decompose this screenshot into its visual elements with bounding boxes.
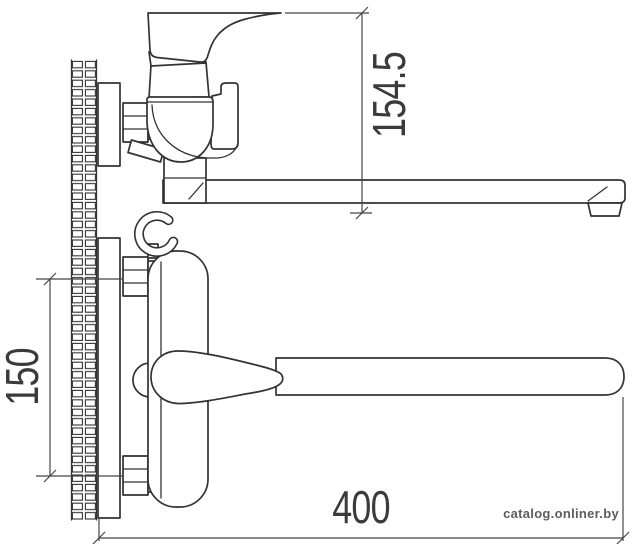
lower-connector-nut (123, 456, 148, 495)
faucet-handle-side (148, 13, 281, 62)
spout-side (163, 180, 625, 203)
dim-label-mount-spacing: 150 (0, 291, 46, 463)
connector-nut-side (123, 103, 148, 142)
wall-hatch (71, 60, 97, 520)
dim-label-spout-height: 154.5 (365, 9, 413, 181)
wall-section (71, 60, 97, 520)
aerator (588, 203, 622, 216)
cartridge-neck (149, 62, 209, 98)
diverter-knob (211, 83, 238, 149)
faucet-handle-top (151, 351, 283, 404)
drawing-canvas (0, 0, 640, 544)
plan-view (98, 216, 624, 518)
spout-top (276, 358, 624, 395)
spout-shank (164, 158, 206, 203)
wall-mount-plate-side (98, 83, 120, 166)
upper-connector-nut (123, 257, 148, 296)
dim-label-spout-reach: 400 (275, 483, 447, 531)
faucet-technical-drawing: 154.5 150 400 catalog.onliner.by (0, 0, 640, 544)
watermark-text: catalog.onliner.by (503, 506, 619, 521)
